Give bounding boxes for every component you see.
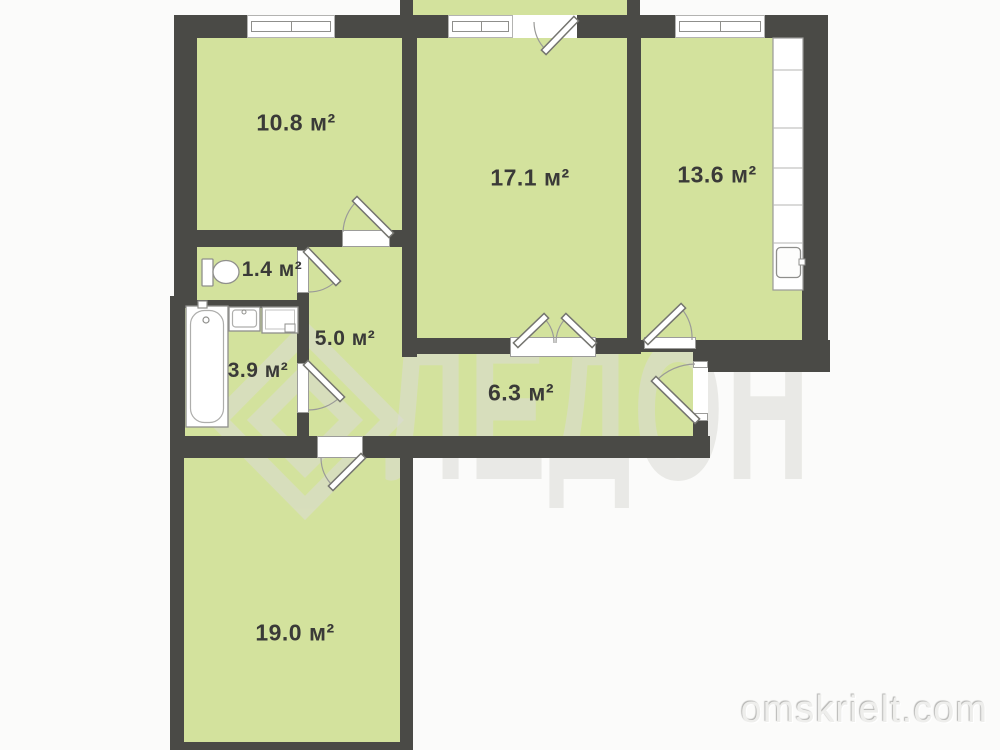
bathtub-icon [186,301,228,427]
bathroom-sink-icon [229,307,260,331]
room-label-13-6: 13.6 м² [677,162,756,189]
room-label-5-0: 5.0 м² [315,327,376,351]
door-13-6-icon [648,308,681,340]
door-leaves [308,21,695,486]
double-door-17-1-right-icon [566,318,592,343]
door-1-4-icon [308,252,336,281]
room-label-10-8: 10.8 м² [256,110,335,137]
room-label-6-3: 6.3 м² [488,380,554,407]
entrance-door-icon [656,381,695,419]
balcony-door-icon [546,21,574,50]
door-10-8-icon [357,201,389,233]
room-label-17-1: 17.1 м² [490,165,569,192]
door-19-0-icon [333,458,361,486]
door-3-9-icon [308,365,340,397]
symbols-layer [0,0,1000,750]
site-watermark: omskrielt.com [741,689,988,732]
door-arcs [308,22,695,486]
double-door-17-1-left-icon [518,318,544,343]
room-label-3-9: 3.9 м² [228,359,289,383]
room-label-1-4: 1.4 м² [242,258,303,282]
kitchen-counter-icon [773,38,805,290]
washing-machine-icon [262,307,298,333]
toilet-icon [202,259,239,286]
room-label-19-0: 19.0 м² [255,620,334,647]
kitchen-sink-icon [777,248,806,278]
floor-plan: ЛЕДОН [0,0,1000,750]
